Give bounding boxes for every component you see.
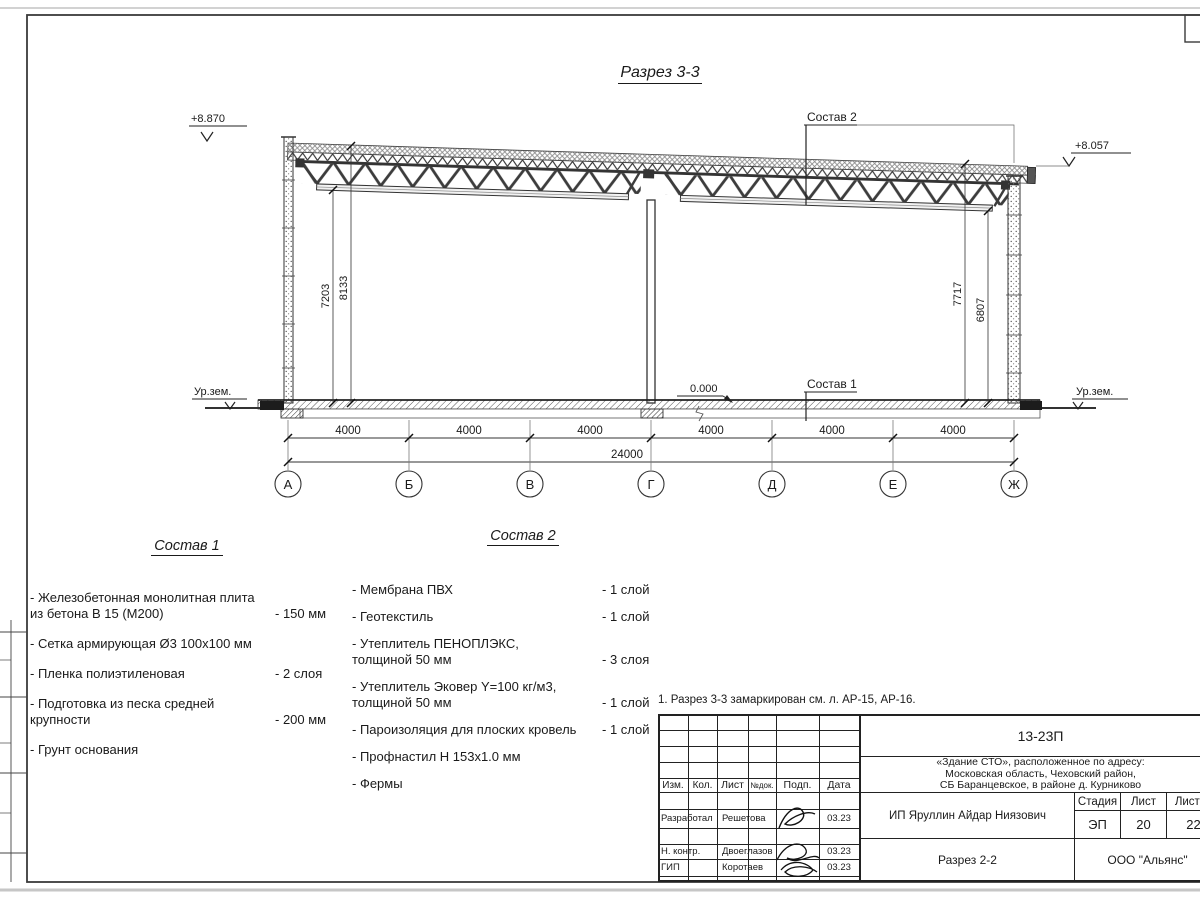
sheet-number: 20: [1121, 811, 1166, 837]
role-date: 03.23: [819, 859, 859, 876]
roof-assembly: [287, 143, 1036, 212]
role-name: Двоеглазов: [719, 844, 779, 859]
col-list: Лист: [717, 778, 748, 792]
ground-level-mark-left: Ур.зем.: [192, 386, 247, 409]
middle-column: [647, 200, 655, 403]
col-podp: Подп.: [776, 778, 819, 792]
role-name: Решетова: [719, 809, 779, 828]
role-name: Коротаев: [719, 859, 779, 876]
list-item: - Подготовка из песка средней крупности …: [30, 696, 360, 728]
floor-slab: [205, 400, 1096, 421]
roof-end-cap: [1027, 167, 1035, 183]
section-title-text: Разрез 3-3: [618, 64, 701, 84]
ground-beam-left: [260, 401, 284, 410]
axis-label: Е: [889, 477, 898, 492]
client-name: ИП Яруллин Айдар Ниязович: [861, 793, 1074, 838]
company-name: ООО "Альянс": [1075, 839, 1200, 880]
dim-height-right-outer: 7717: [952, 282, 964, 306]
elevation-value: +8.870: [191, 113, 225, 125]
span-dim: 4000: [456, 425, 482, 437]
col-doc: №док.: [748, 778, 776, 792]
list-item: - Грунт основания: [30, 742, 360, 758]
col-kol: Кол.: [688, 778, 717, 792]
ground-level-mark-right: Ур.зем.: [1072, 386, 1128, 409]
axis-bubbles: А Б В Г Д Е Ж: [275, 471, 1027, 497]
elevation-value: +8.057: [1075, 140, 1109, 152]
total-dim: 24000: [611, 449, 643, 461]
role-label: Разработал: [658, 809, 720, 828]
list-item: - Утеплитель ПЕНОПЛЭКС, толщиной 50 мм -…: [352, 636, 664, 668]
corner-stamp-box: [1185, 15, 1200, 42]
callout-label: Состав 1: [807, 377, 857, 391]
dim-height-right-inner: 6807: [975, 298, 987, 322]
sheet-note: 1. Разрез 3-3 замаркирован см. л. АР-15,…: [658, 694, 1178, 706]
composition-1-list: Состав 1 - Железобетонная монолитная пли…: [30, 538, 360, 772]
sheet-header: Лист: [1121, 793, 1166, 810]
level-arrow-icon: [1063, 157, 1075, 166]
stage-header: Стадия: [1075, 793, 1120, 810]
span-dim: 4000: [940, 425, 966, 437]
list-item: - Геотекстиль - 1 слой: [352, 609, 664, 625]
span-dim: 4000: [335, 425, 361, 437]
left-wall: [281, 137, 296, 403]
list-item: - Пленка полиэтиленовая - 2 слоя: [30, 666, 360, 682]
axis-label: Д: [768, 477, 777, 492]
stage-value: ЭП: [1075, 811, 1120, 837]
list-item: - Профнастил Н 153х1.0 мм: [352, 749, 664, 765]
list-item: - Пароизоляция для плоских кровель - 1 с…: [352, 722, 664, 738]
role-label: ГИП: [658, 859, 720, 876]
axis-label: Б: [405, 477, 414, 492]
foundation-left: [281, 409, 303, 418]
composition-2-list: Состав 2 - Мембрана ПВХ - 1 слой - Геоте…: [352, 528, 664, 803]
list-item: - Мембрана ПВХ - 1 слой: [352, 582, 664, 598]
foundation-middle: [641, 409, 663, 418]
signature: [779, 808, 815, 828]
col-izm: Изм.: [658, 778, 688, 792]
list-item: - Сетка армирующая Ø3 100х100 мм: [30, 636, 360, 652]
role-date: 03.23: [819, 844, 859, 859]
list-item: - Железобетонная монолитная плита из бет…: [30, 590, 360, 622]
list-item: - Фермы: [352, 776, 664, 792]
callout-label: Состав 2: [807, 110, 857, 124]
title-block: Изм. Кол. Лист №док. Подп. Дата Разработ…: [658, 714, 1200, 882]
dim-height-left-outer: 8133: [338, 276, 350, 300]
dim-height-left-inner: 7203: [320, 284, 332, 308]
span-dim: 4000: [577, 425, 603, 437]
elevation-mark-left: +8.870: [189, 113, 247, 141]
drawing-sheet: +8.870 +8.057 Ур.зем. Ур.зем. 0.000: [0, 0, 1200, 900]
signature-area: [773, 802, 823, 880]
ground-beam-right: [1020, 401, 1042, 410]
level-arrow-icon: [201, 132, 213, 141]
ground-level-label: Ур.зем.: [194, 386, 231, 398]
zero-level-label: 0.000: [690, 383, 718, 395]
sheets-header: Листов: [1167, 793, 1200, 810]
composition-2-heading: Состав 2: [378, 528, 668, 546]
elevation-mark-right: +8.057: [1036, 140, 1131, 166]
axis-label: Ж: [1008, 477, 1020, 492]
composition-1-heading: Состав 1: [42, 538, 332, 556]
list-item: - Утеплитель Эковер Y=100 кг/м3, толщино…: [352, 679, 664, 711]
col-data: Дата: [819, 778, 859, 792]
object-description: «Здание СТО», расположенное по адресу: М…: [861, 757, 1200, 792]
signature: [777, 844, 819, 876]
axis-label: В: [526, 477, 535, 492]
right-wall: [1006, 176, 1023, 403]
page-title: Разрез 3-3: [560, 64, 760, 84]
span-dim: 4000: [698, 425, 724, 437]
sheets-total: 22: [1167, 811, 1200, 837]
doc-number: 13-23П: [861, 716, 1200, 756]
role-label: Н. контр.: [658, 844, 720, 859]
ground-level-label: Ур.зем.: [1076, 386, 1113, 398]
role-date: 03.23: [819, 809, 859, 828]
drawing-title: Разрез 2-2: [861, 839, 1074, 880]
left-border-stamp: [0, 620, 27, 882]
span-dim: 4000: [819, 425, 845, 437]
axis-label: Г: [647, 477, 654, 492]
axis-label: А: [284, 477, 293, 492]
floor-bedding: [300, 409, 1040, 418]
